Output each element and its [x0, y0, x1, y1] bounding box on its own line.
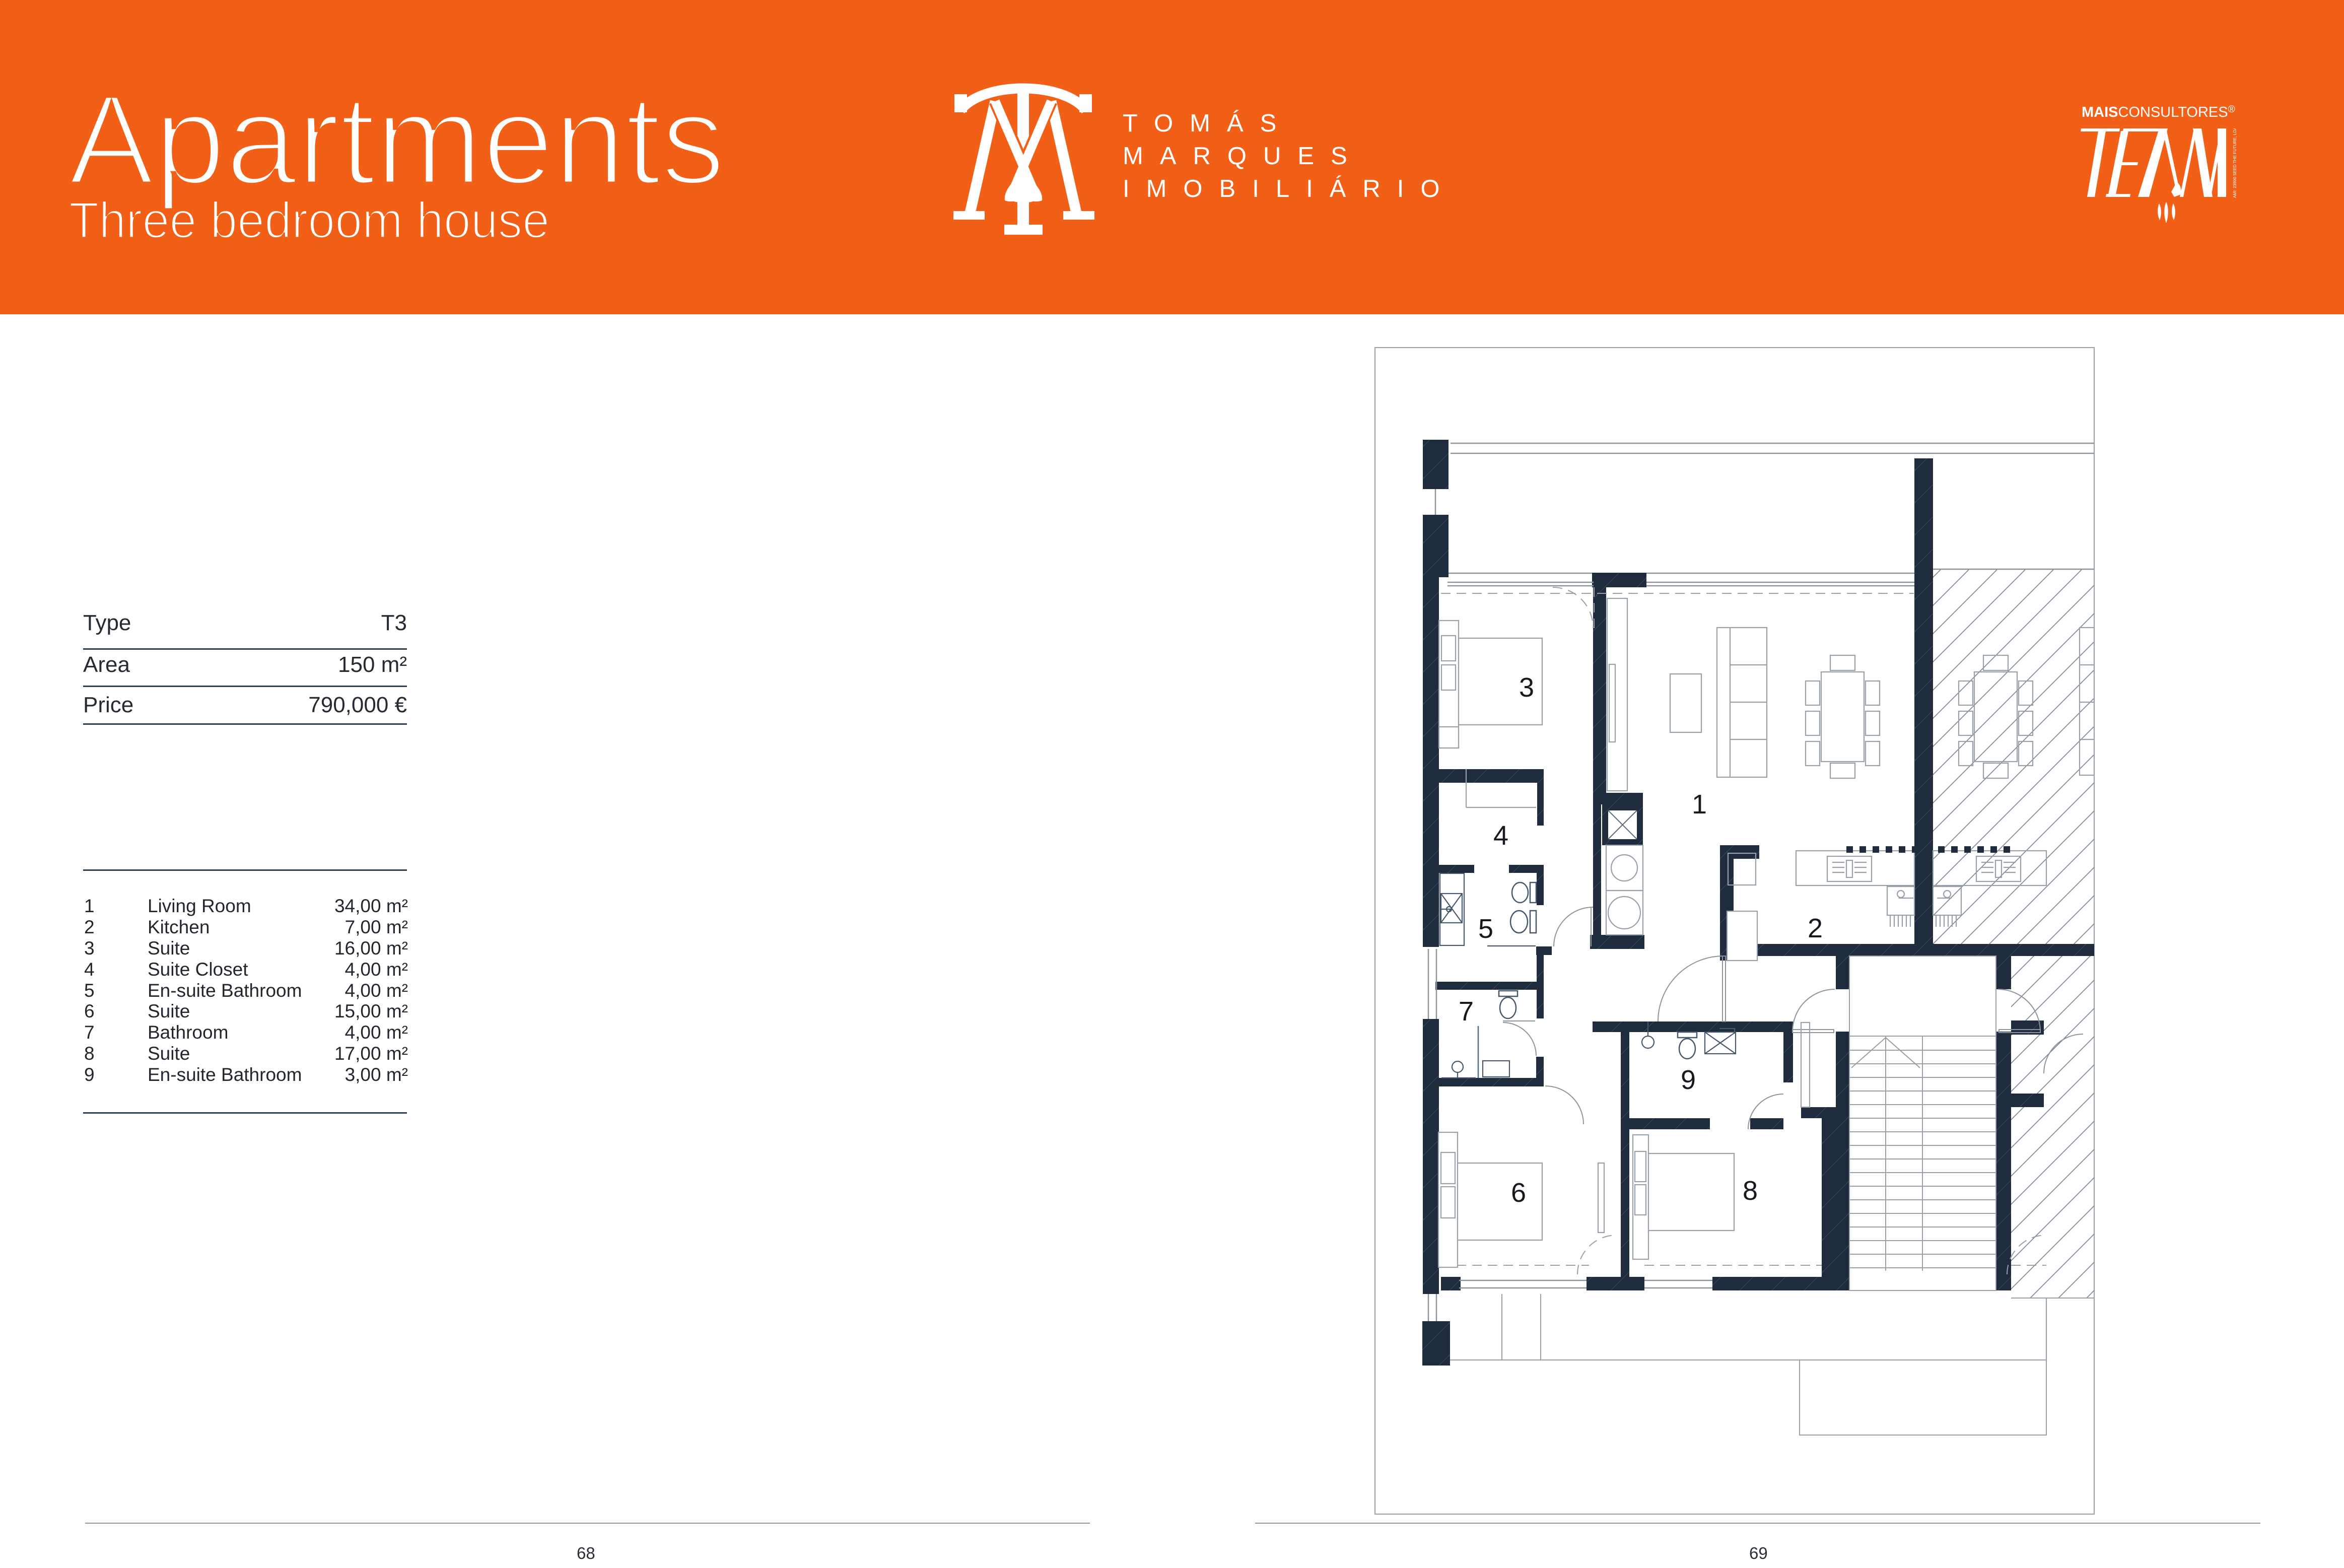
- svg-text:8: 8: [1743, 1176, 1758, 1206]
- svg-text:4: 4: [1493, 821, 1508, 851]
- svg-text:1: 1: [1692, 789, 1707, 820]
- svg-text:AMI: 23990 SEED THE FUTURE, L: AMI: 23990 SEED THE FUTURE, LDA.: [2233, 128, 2237, 198]
- svg-text:7: 7: [1459, 996, 1474, 1027]
- svg-text:6: 6: [1511, 1178, 1526, 1208]
- svg-text:5: 5: [1478, 914, 1493, 944]
- svg-text:3: 3: [1519, 672, 1534, 703]
- svg-text:9: 9: [1681, 1065, 1696, 1095]
- svg-text:2: 2: [1808, 913, 1823, 943]
